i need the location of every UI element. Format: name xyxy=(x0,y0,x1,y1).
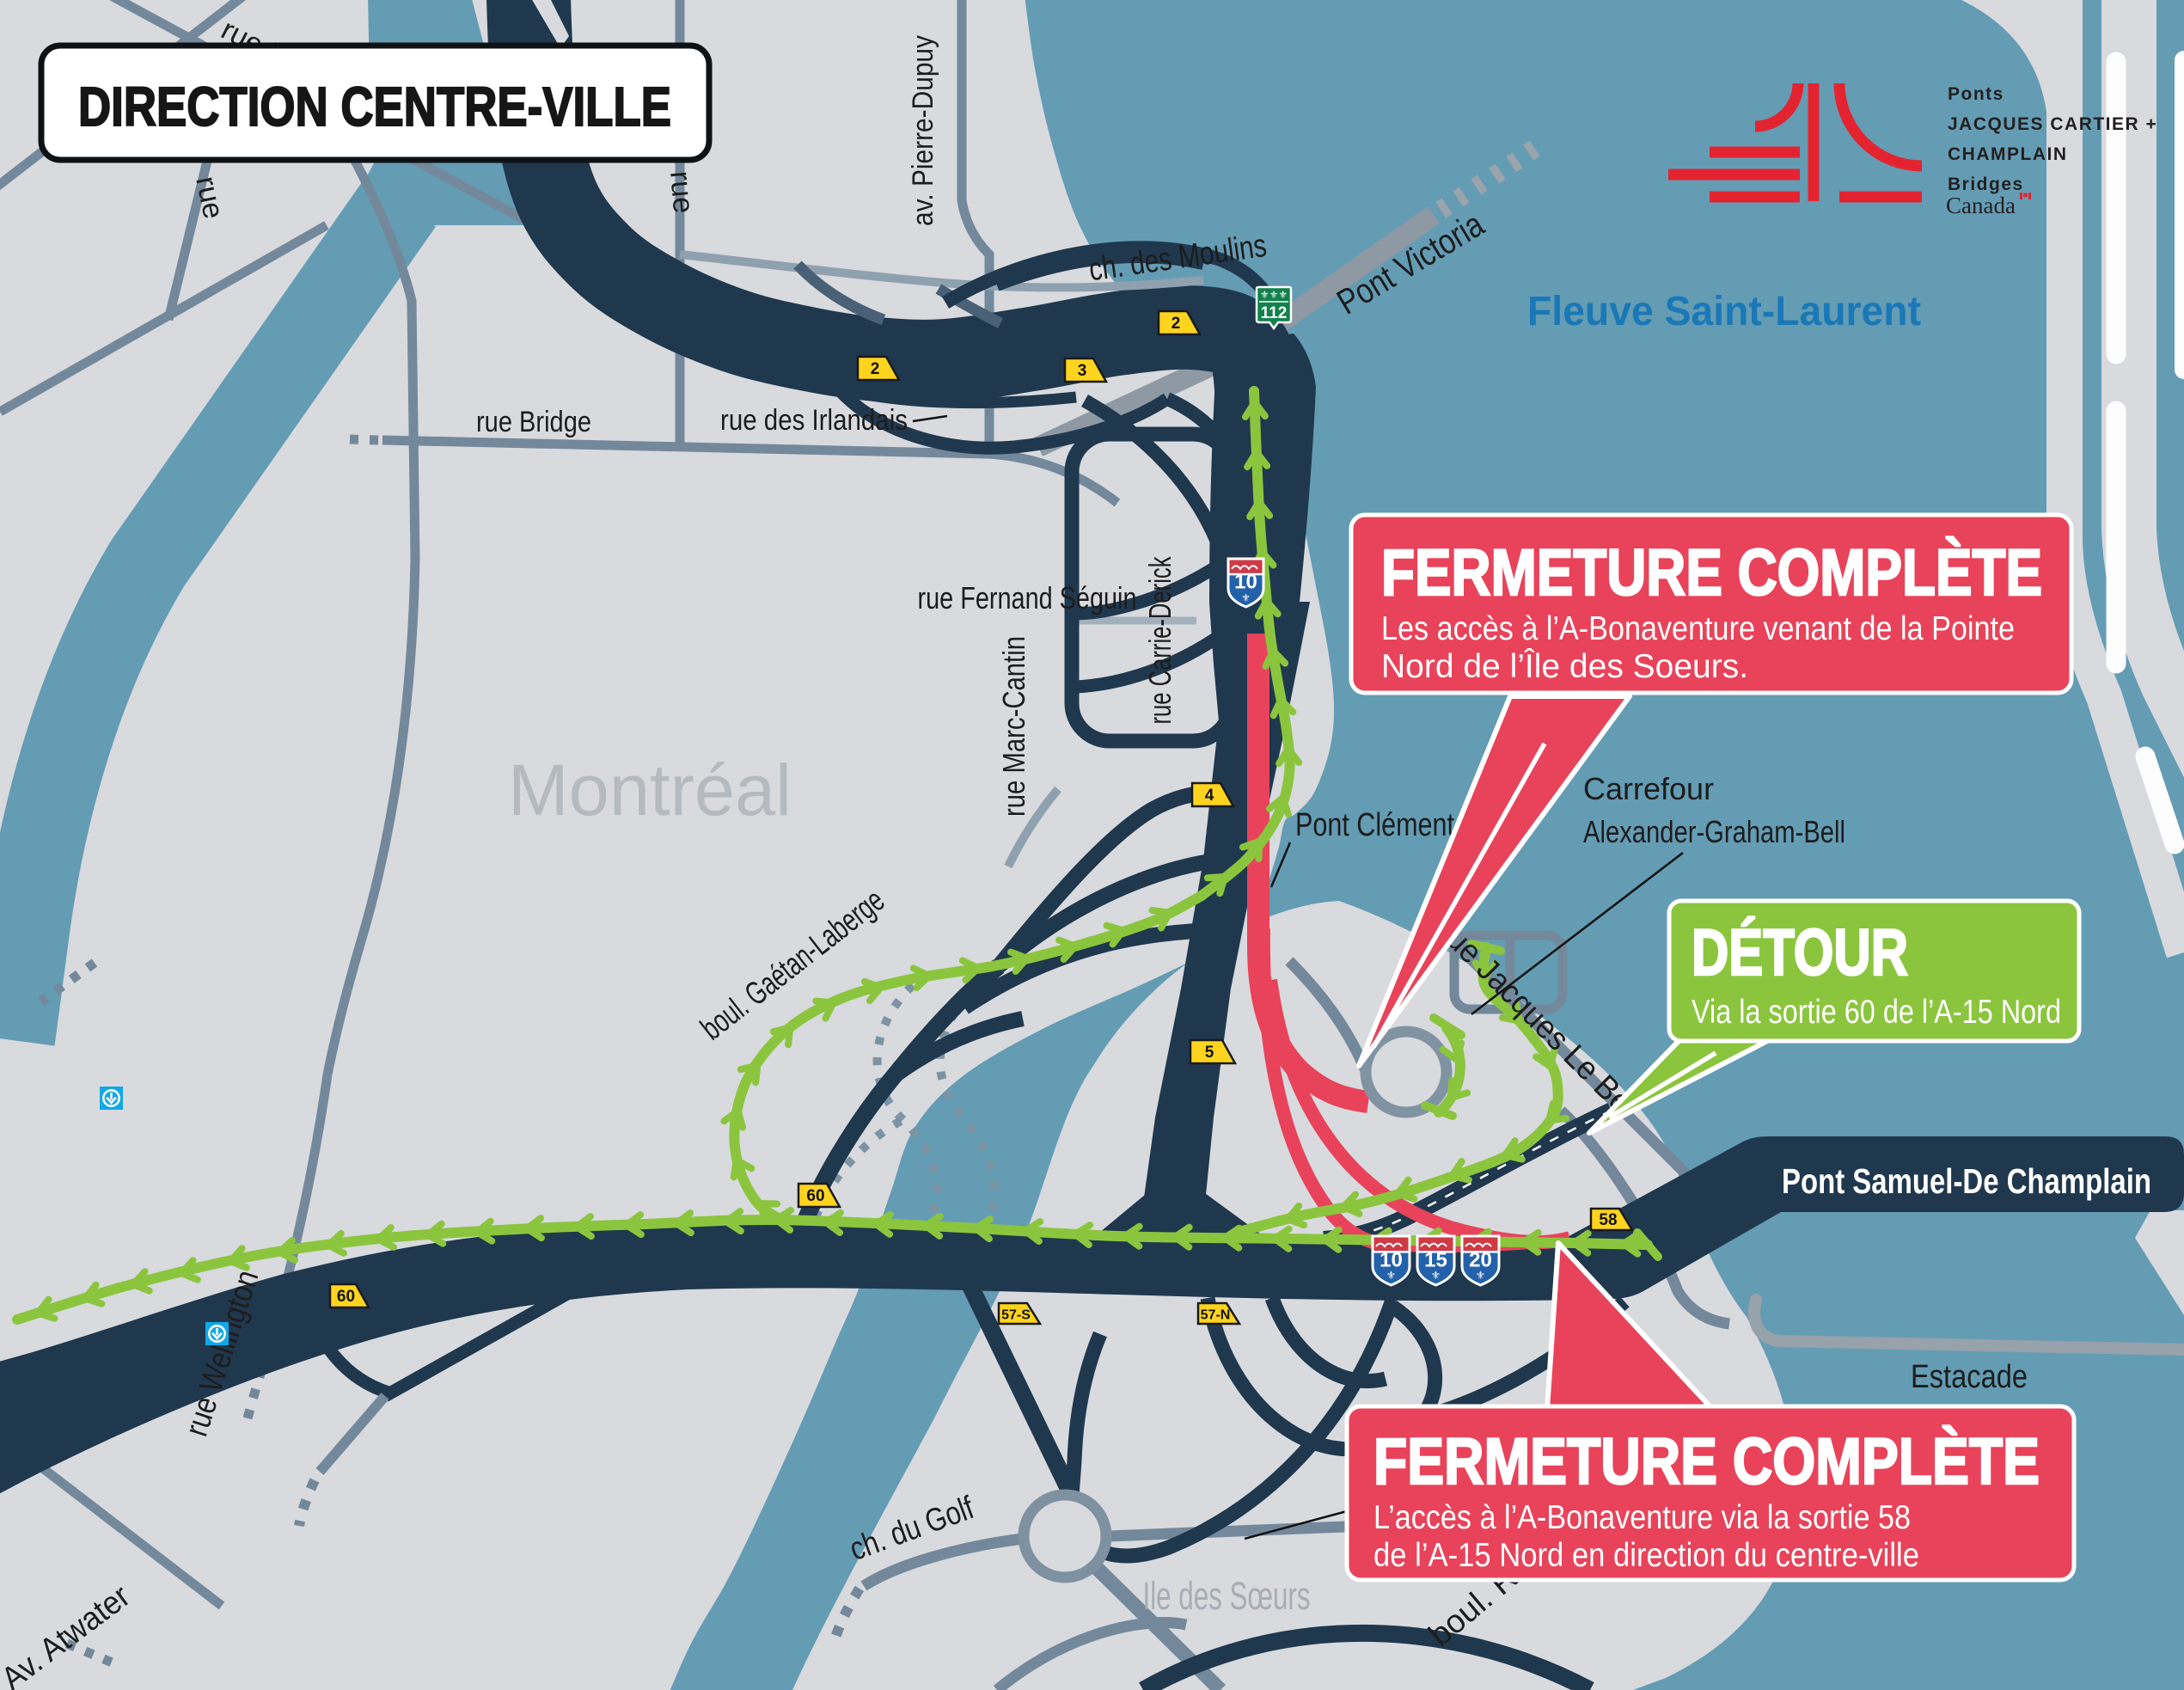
svg-text:rue Marc-Cantin: rue Marc-Cantin xyxy=(996,636,1031,817)
svg-text:60: 60 xyxy=(337,1288,355,1306)
svg-text:JACQUES CARTIER +: JACQUES CARTIER + xyxy=(1948,114,2157,134)
svg-text:L’accès à l’A-Bonaventure via: L’accès à l’A-Bonaventure via la sortie … xyxy=(1373,1499,1911,1536)
svg-text:Les accès à l’A-Bonaventure ve: Les accès à l’A-Bonaventure venant de la… xyxy=(1381,610,2015,647)
svg-text:⚜⚜⚜: ⚜⚜⚜ xyxy=(1260,289,1288,301)
svg-text:Bridges: Bridges xyxy=(1948,175,2024,194)
svg-text:rue: rue xyxy=(664,169,700,214)
svg-text:Carrefour: Carrefour xyxy=(1583,771,1714,806)
svg-text:⚜: ⚜ xyxy=(1431,1269,1441,1282)
svg-text:rue Carrie-Derick: rue Carrie-Derick xyxy=(1142,556,1178,725)
svg-text:60: 60 xyxy=(806,1187,824,1205)
svg-text:⚜: ⚜ xyxy=(1241,591,1251,603)
svg-text:⚜: ⚜ xyxy=(1386,1269,1397,1282)
svg-text:⚜: ⚜ xyxy=(1476,1269,1486,1282)
svg-text:Pont Samuel-De Champlain: Pont Samuel-De Champlain xyxy=(1782,1161,2151,1201)
svg-text:57-S: 57-S xyxy=(1001,1308,1031,1323)
svg-text:DIRECTION CENTRE-VILLE: DIRECTION CENTRE-VILLE xyxy=(78,76,671,138)
svg-text:Pont Clément: Pont Clément xyxy=(1295,807,1454,843)
svg-text:FERMETURE COMPLÈTE: FERMETURE COMPLÈTE xyxy=(1381,536,2042,609)
svg-text:2: 2 xyxy=(871,360,880,378)
svg-text:Canada: Canada xyxy=(1946,193,2016,218)
svg-text:Montréal: Montréal xyxy=(508,750,792,830)
svg-text:58: 58 xyxy=(1599,1211,1617,1229)
svg-text:rue Fernand Séguin: rue Fernand Séguin xyxy=(918,580,1137,615)
svg-text:5: 5 xyxy=(1205,1044,1214,1062)
svg-text:DÉTOUR: DÉTOUR xyxy=(1692,916,1908,989)
svg-text:Ile des Sœurs: Ile des Sœurs xyxy=(1143,1574,1311,1618)
svg-text:rue Bridge: rue Bridge xyxy=(476,406,591,438)
svg-text:rue des Irlandais: rue des Irlandais xyxy=(720,404,908,437)
svg-text:10: 10 xyxy=(1234,571,1257,594)
svg-text:CHAMPLAIN: CHAMPLAIN xyxy=(1948,144,2068,164)
svg-text:Nord de l’Île des Soeurs.: Nord de l’Île des Soeurs. xyxy=(1381,648,1748,685)
svg-text:av. Pierre-Dupuy: av. Pierre-Dupuy xyxy=(907,35,939,226)
svg-text:de l’A-15 Nord en direction du: de l’A-15 Nord en direction du centre-vi… xyxy=(1373,1537,1919,1574)
svg-text:Alexander-Graham-Bell: Alexander-Graham-Bell xyxy=(1583,814,1845,849)
svg-text:4: 4 xyxy=(1205,787,1214,805)
svg-text:57-N: 57-N xyxy=(1201,1308,1231,1323)
svg-text:2: 2 xyxy=(1172,315,1181,333)
svg-text:Estacade: Estacade xyxy=(1911,1359,2028,1395)
svg-text:Ponts: Ponts xyxy=(1948,84,2004,104)
svg-text:Fleuve Saint-Laurent: Fleuve Saint-Laurent xyxy=(1527,289,1921,334)
svg-text:3: 3 xyxy=(1078,362,1087,380)
svg-text:112: 112 xyxy=(1261,304,1288,322)
svg-text:Via la sortie 60 de l’A-15 Nor: Via la sortie 60 de l’A-15 Nord xyxy=(1692,994,2061,1031)
svg-text:FERMETURE COMPLÈTE: FERMETURE COMPLÈTE xyxy=(1373,1425,2040,1498)
